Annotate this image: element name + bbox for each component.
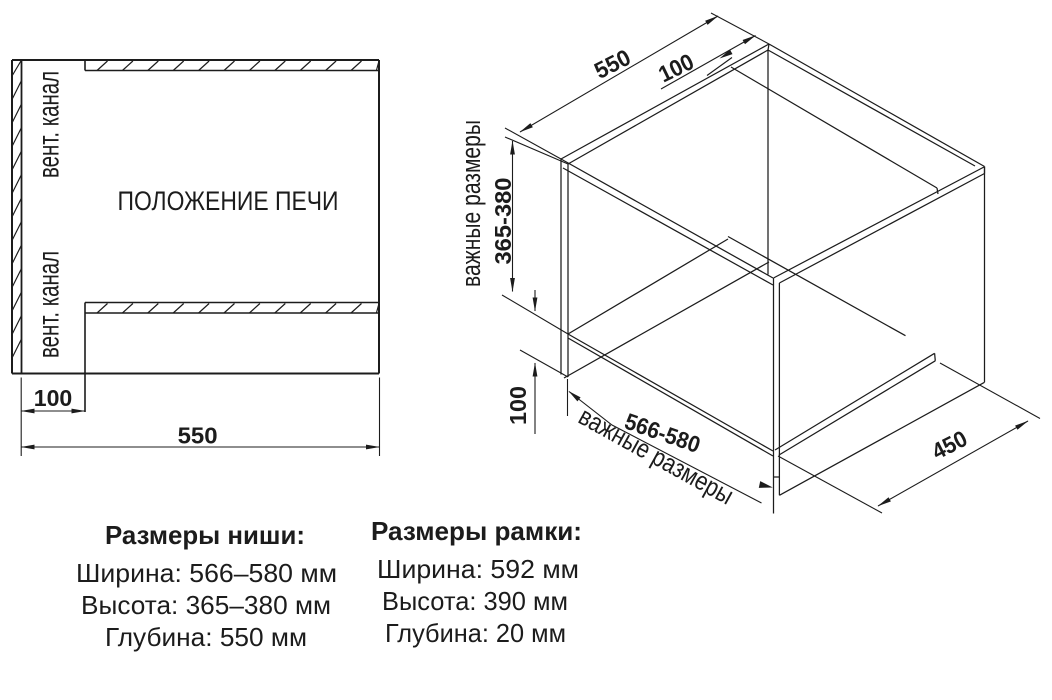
svg-text:365-380: 365-380 [490,178,516,265]
svg-text:100: 100 [34,385,73,411]
svg-text:Ширина: 566–580 мм: Ширина: 566–580 мм [76,558,337,588]
svg-text:Глубина: 550 мм: Глубина: 550 мм [105,622,307,652]
svg-text:100: 100 [505,386,531,425]
svg-text:важные размеры: важные размеры [456,120,486,287]
svg-text:Размеры ниши:: Размеры ниши: [105,520,305,550]
svg-text:Высота: 365–380 мм: Высота: 365–380 мм [81,590,331,620]
svg-text:вент. канал: вент. канал [33,251,66,358]
svg-text:Глубина: 20 мм: Глубина: 20 мм [385,618,566,648]
svg-text:550: 550 [178,423,218,449]
svg-text:вент. канал: вент. канал [33,71,66,178]
svg-text:Ширина: 592 мм: Ширина: 592 мм [377,554,579,584]
svg-text:Высота: 390 мм: Высота: 390 мм [382,586,568,616]
svg-text:Размеры рамки:: Размеры рамки: [371,516,582,546]
svg-text:ПОЛОЖЕНИЕ ПЕЧИ: ПОЛОЖЕНИЕ ПЕЧИ [118,186,339,216]
